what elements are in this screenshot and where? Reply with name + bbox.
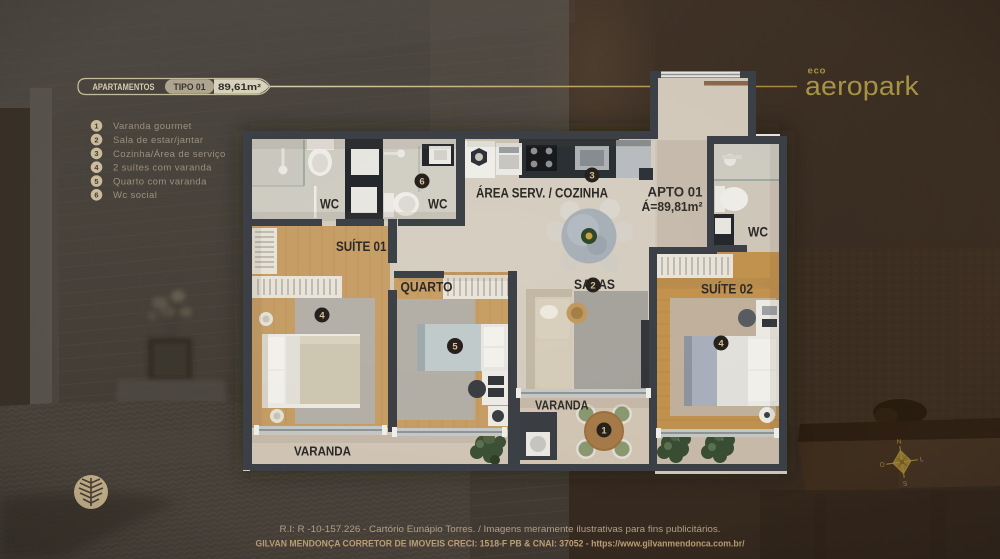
svg-text:O: O bbox=[879, 461, 885, 469]
